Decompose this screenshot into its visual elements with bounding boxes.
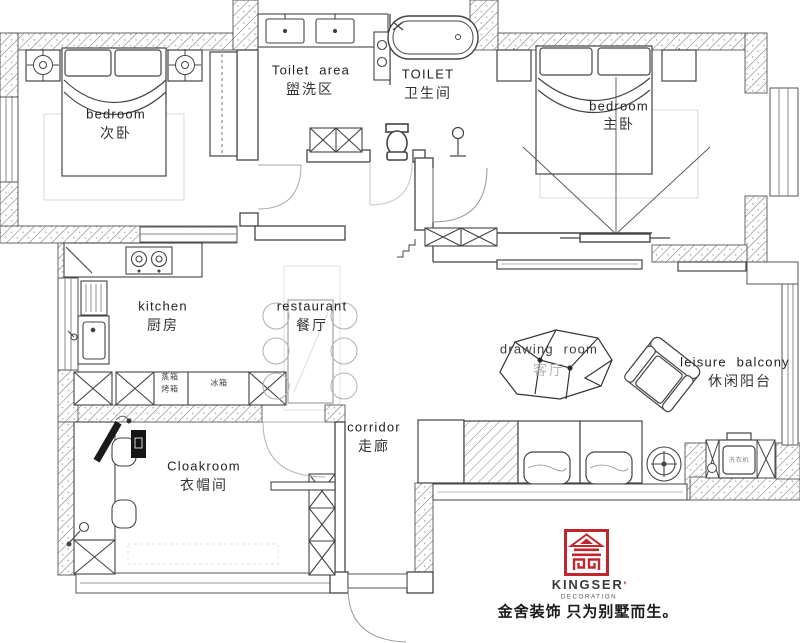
door-bedroom1 <box>433 168 487 222</box>
label-oven: 烤箱 <box>161 382 179 394</box>
cloakroom-shelf <box>271 482 335 490</box>
label-bedroom1-en: bedroom <box>589 99 649 114</box>
balcony-bench <box>678 262 746 271</box>
nightstand <box>662 50 696 81</box>
label-bedroom2-en: bedroom <box>86 107 146 122</box>
door-entry <box>348 574 407 642</box>
label-leisure-balcony-zh: 休闲阳台 <box>708 371 772 391</box>
brand-trademark: ' <box>624 580 627 592</box>
label-washing-machine: 洗衣机 <box>729 454 749 463</box>
brand-name: KINGSER' <box>552 576 626 594</box>
step-icon <box>397 239 415 257</box>
floor-fan-icon <box>647 447 681 481</box>
dining-chair <box>263 338 289 364</box>
label-toilet-zh: 卫生间 <box>404 83 452 103</box>
door-bedroom2 <box>258 165 301 209</box>
label-toilet-area-zh: 盥洗区 <box>286 79 334 99</box>
cloakroom-cabinet-x <box>74 540 115 574</box>
sofa-armrest <box>418 420 464 483</box>
kitchen-cabinets <box>74 372 286 405</box>
label-drawing-room-zh: 客厅 <box>533 360 565 380</box>
label-drawing-room-en: drawing room <box>500 342 598 357</box>
door-cloakroom <box>263 422 325 477</box>
window-left-kitchen <box>58 278 78 370</box>
label-bedroom2-zh: 次卧 <box>100 123 132 143</box>
armchair <box>623 335 702 413</box>
window-right-top <box>770 88 798 196</box>
sofa-chaise <box>464 421 518 483</box>
label-corridor-en: corridor <box>347 420 401 435</box>
floor-plan-drawing <box>0 0 800 643</box>
nightstand <box>497 50 531 81</box>
dish-rack-icon <box>81 281 107 315</box>
brand-slogan: 金舍装饰 只为别墅而生。 <box>498 601 679 622</box>
label-toilet-area-en: Toilet area <box>272 63 350 78</box>
label-restaurant-en: restaurant <box>277 299 348 314</box>
label-cloakroom-zh: 衣帽间 <box>180 475 228 495</box>
sofa <box>418 420 642 484</box>
kingser-logo-icon <box>564 529 609 576</box>
living-baseboard <box>433 484 687 500</box>
sofa-cushion <box>586 452 632 484</box>
baseboard-cloakroom <box>76 573 345 593</box>
hanger-rack <box>112 500 136 528</box>
dining-chair <box>331 338 357 364</box>
bathtub-icon <box>388 16 478 59</box>
label-restaurant-zh: 餐厅 <box>296 315 328 335</box>
label-toilet-en: TOILET <box>402 67 454 82</box>
window-sill <box>747 262 798 284</box>
wardrobe-strip <box>210 52 237 156</box>
label-kitchen-en: kitchen <box>138 299 188 314</box>
door-toilet <box>370 162 412 205</box>
stove-icon <box>126 247 172 274</box>
storage-cabinet-x <box>310 128 362 152</box>
label-steam-box: 蒸箱 <box>161 370 179 382</box>
toilet-icon <box>386 124 408 160</box>
floor-plan: bedroom 次卧 Toilet area 盥洗区 TOILET 卫生间 be… <box>0 0 800 643</box>
bay-window-bedroom2 <box>140 227 237 242</box>
shoe-cabinet <box>425 228 497 246</box>
dining-chair <box>331 373 357 399</box>
label-fridge: 冰箱 <box>210 376 228 388</box>
brand-division: DECORATION <box>561 594 617 601</box>
label-bedroom1-zh: 主卧 <box>603 114 635 134</box>
tv-console <box>497 260 642 269</box>
toilet-brush-icon <box>450 128 466 157</box>
cloakroom-furniture <box>67 416 335 575</box>
label-corridor-zh: 走廊 <box>358 436 390 456</box>
brand-name-text: KINGSER <box>552 577 624 592</box>
bedroom1-furniture <box>497 46 710 269</box>
label-kitchen-zh: 厨房 <box>147 315 179 335</box>
label-leisure-balcony-en: leisure balcony <box>680 355 790 370</box>
sofa-cushion <box>524 452 570 484</box>
window-left-top <box>0 97 18 182</box>
label-cloakroom-en: Cloakroom <box>167 459 241 474</box>
tv-icon <box>560 234 670 242</box>
